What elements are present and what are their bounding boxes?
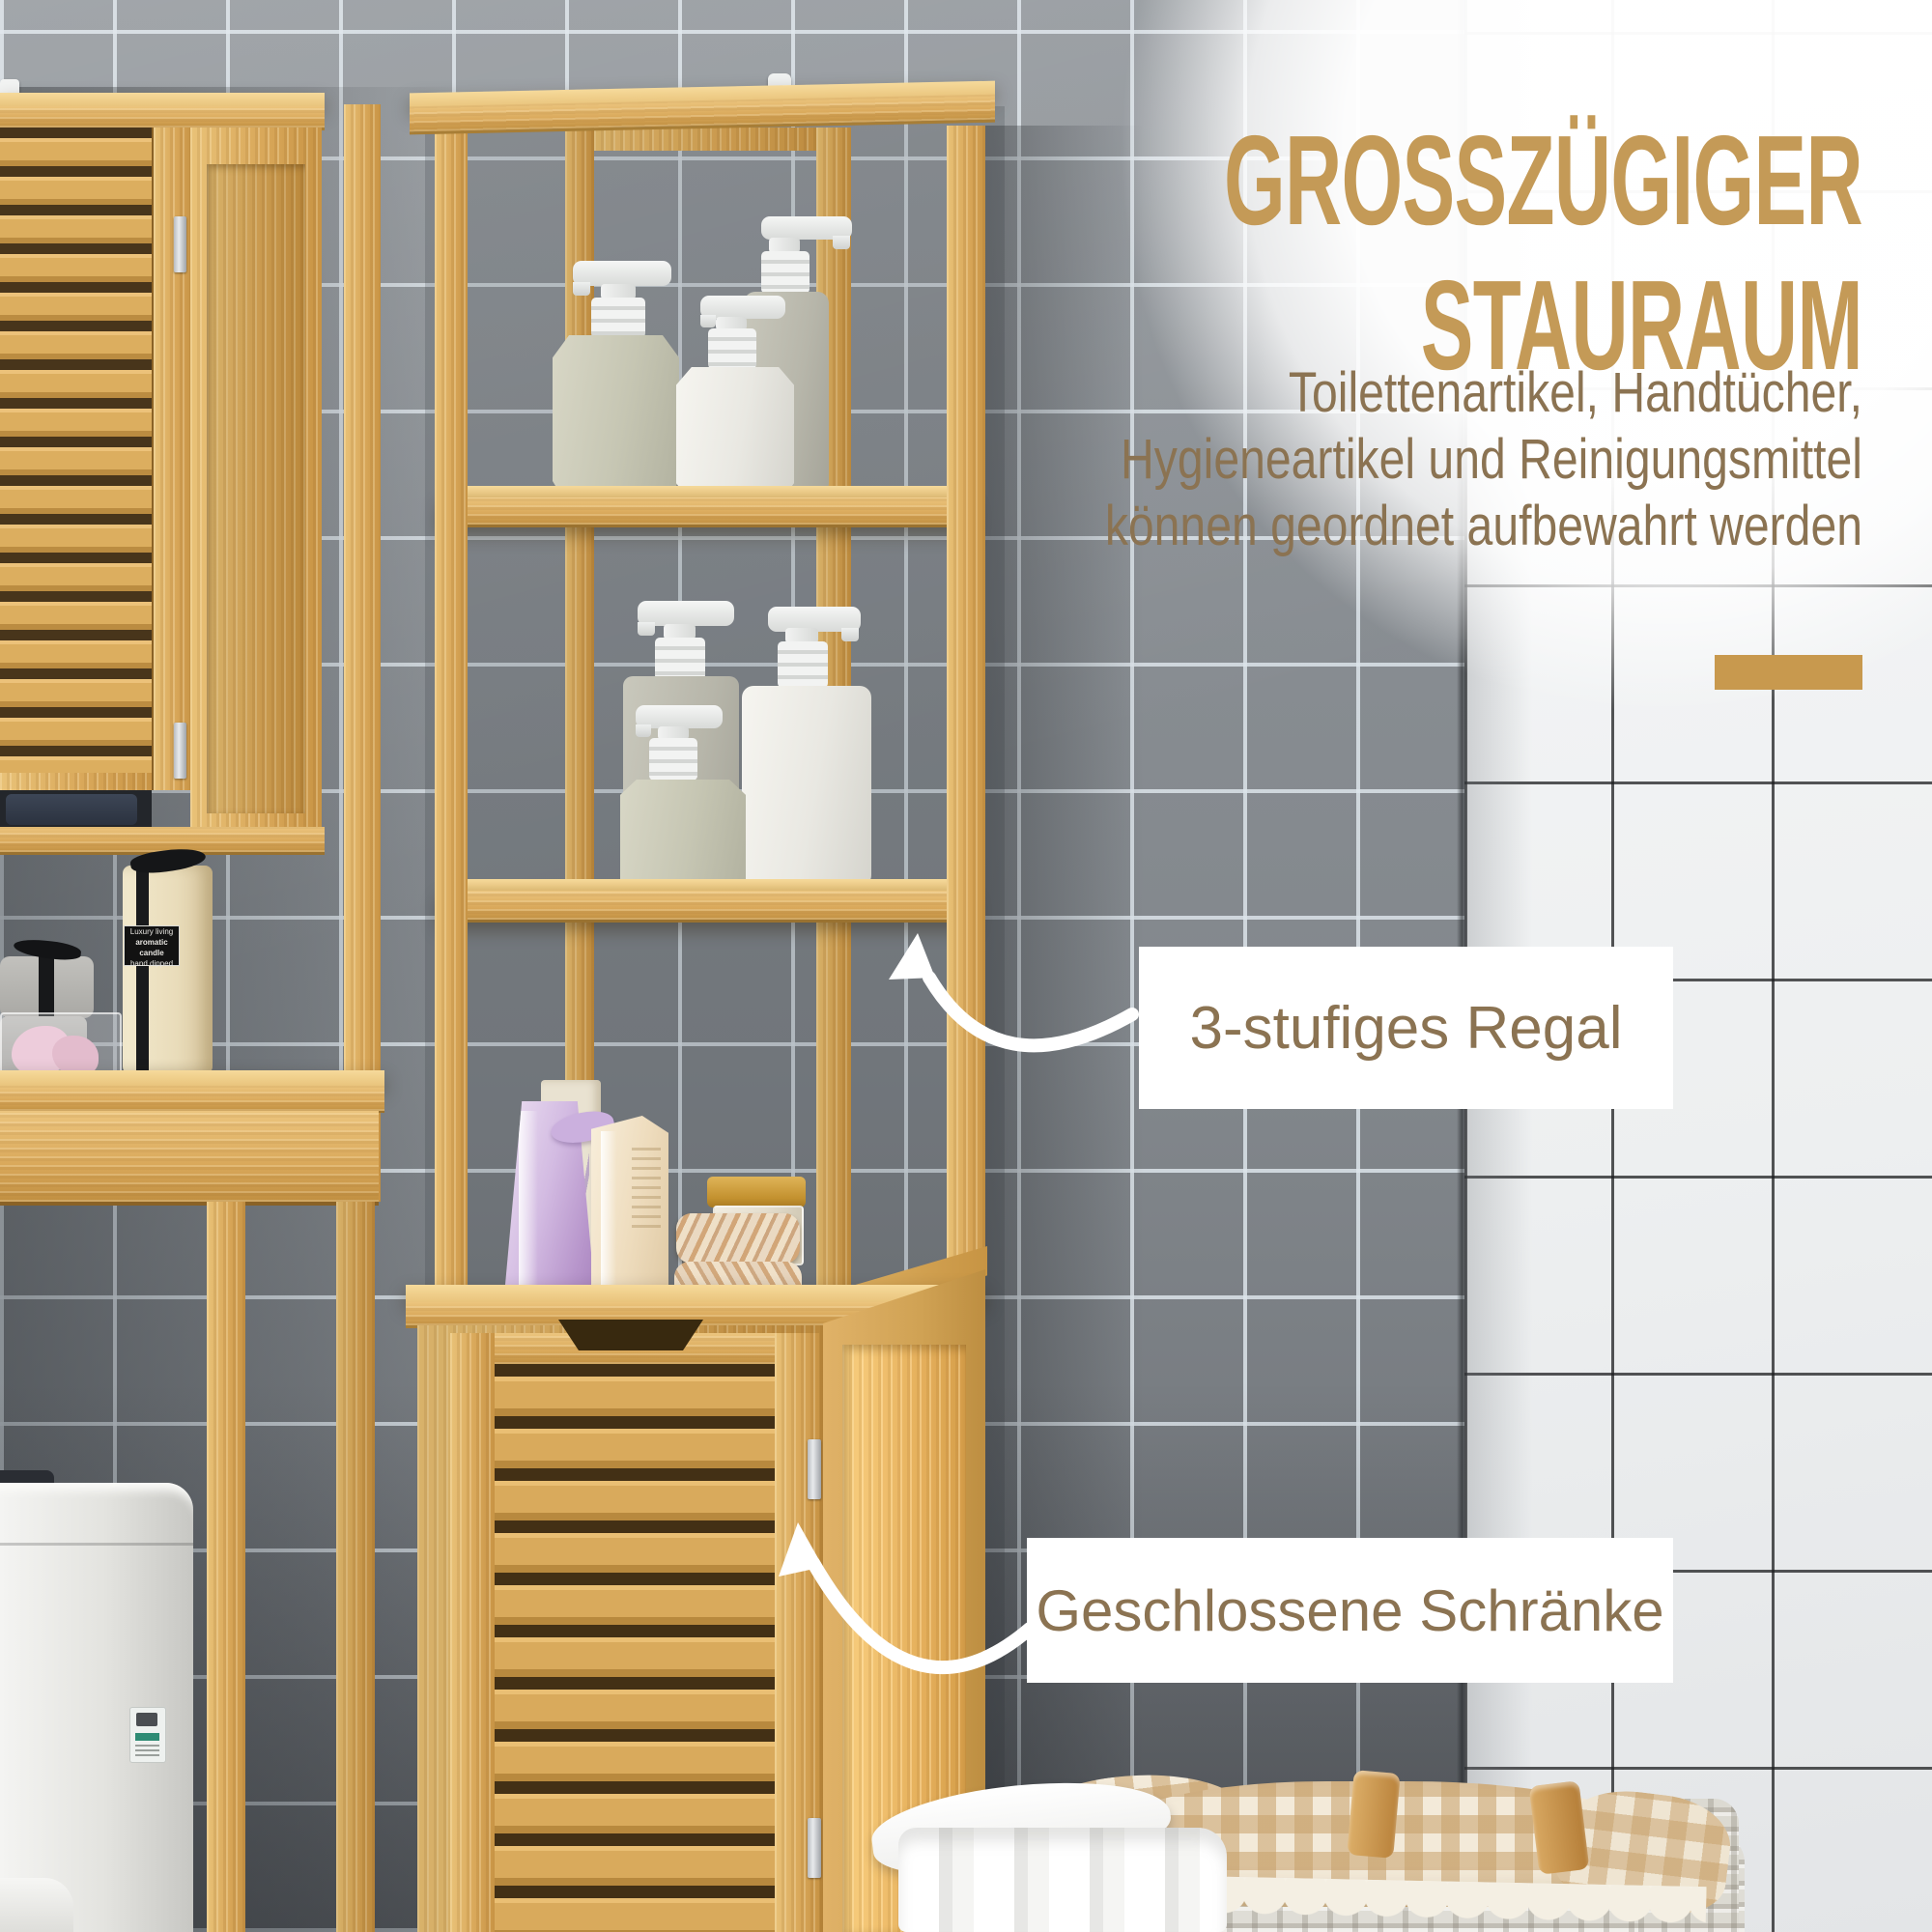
description-line1: Toilettenartikel, Handtücher, (980, 359, 1862, 426)
headline: GROSSZÜGIGER STAURAUM (1204, 108, 1862, 398)
pump-spout (636, 724, 651, 737)
cream-box (591, 1116, 668, 1306)
left-cabinet-side-panel (190, 128, 322, 850)
callout-shelf: 3-stufiges Regal (1139, 947, 1673, 1109)
candle-label-line: Luxury living (125, 926, 179, 937)
accent-bar (1715, 655, 1862, 690)
callout-cabinet-label: Geschlossene Schränke (1036, 1577, 1663, 1644)
door-handle-cutout (558, 1320, 703, 1350)
candle-label: Luxury living aromatic candle hand dippe… (124, 925, 180, 966)
left-unit-rear-leg (344, 104, 381, 1202)
pump-collar (761, 251, 810, 294)
leather-strap (1529, 1780, 1590, 1875)
product-infographic: Luxury living aromatic candle hand dippe… (0, 0, 1932, 1932)
hinge-icon (174, 723, 186, 779)
candle-ribbon (136, 866, 149, 1074)
toilet-cistern (0, 1483, 193, 1932)
towel-slot (0, 790, 152, 829)
sticker-stripe (135, 1733, 159, 1741)
headline-line1: GROSSZÜGIGER (1204, 108, 1862, 253)
pump-collar (655, 638, 705, 680)
description-line2: Hygieneartikel und Reinigungsmittel (980, 426, 1862, 493)
cistern-lid-seam (0, 1543, 193, 1546)
pump-bottle-sage (553, 335, 679, 496)
box-label (632, 1141, 661, 1228)
left-unit-rear-leg-lower (336, 1202, 375, 1932)
shelf-rear-rail-top (565, 128, 851, 151)
bag-gloss (519, 1111, 538, 1294)
door-stile-left (450, 1333, 495, 1932)
toilet-bowl (0, 1878, 73, 1932)
left-unit-apron (0, 1111, 379, 1206)
cabinet-louver-door (495, 1364, 775, 1932)
door-top-rail (495, 1333, 775, 1364)
description-line3: können geordnet aufbewahrt werden (980, 493, 1862, 559)
callout-cabinet: Geschlossene Schränke (1027, 1538, 1673, 1683)
pump-spout (573, 282, 590, 296)
leather-strap (1347, 1770, 1400, 1859)
left-unit-front-leg (207, 1202, 245, 1932)
candle-label-line: hand dipped (125, 958, 179, 969)
candle: Luxury living aromatic candle hand dippe… (123, 866, 213, 1074)
hinge-icon (808, 1439, 821, 1499)
navy-towel (6, 794, 137, 825)
left-shelf-edge (0, 1086, 384, 1113)
cistern-sticker (129, 1707, 166, 1763)
unit-front-post-left (435, 126, 468, 1296)
box-gloss (601, 1131, 616, 1295)
soap-bar (676, 1213, 800, 1264)
pump-collar (591, 298, 645, 338)
description: Toilettenartikel, Handtücher, Hygieneart… (980, 359, 1862, 559)
pump-collar (649, 738, 697, 781)
candle-label-line: aromatic candle (125, 937, 179, 958)
pump-spout (700, 315, 716, 327)
left-cabinet-top-face (0, 93, 325, 106)
left-door-bottom-rail (0, 773, 152, 790)
sticker-lines (135, 1745, 159, 1756)
side-panel-recess (207, 164, 305, 813)
stone-soap-stack (0, 956, 94, 1018)
callout-shelf-label: 3-stufiges Regal (1189, 994, 1622, 1063)
pump-collar (708, 328, 756, 369)
sticker-mark (136, 1713, 157, 1726)
hinge-icon (808, 1818, 821, 1878)
left-cabinet-louver-door (0, 128, 152, 773)
pump-bottle-sage-small (620, 780, 746, 889)
left-shelf-top-face (0, 1070, 384, 1086)
white-towel-drape (898, 1828, 1227, 1932)
pump-bottle-white (676, 367, 794, 495)
hinge-icon (174, 216, 186, 272)
pump-spout (638, 622, 655, 636)
jar-lid (707, 1177, 806, 1207)
